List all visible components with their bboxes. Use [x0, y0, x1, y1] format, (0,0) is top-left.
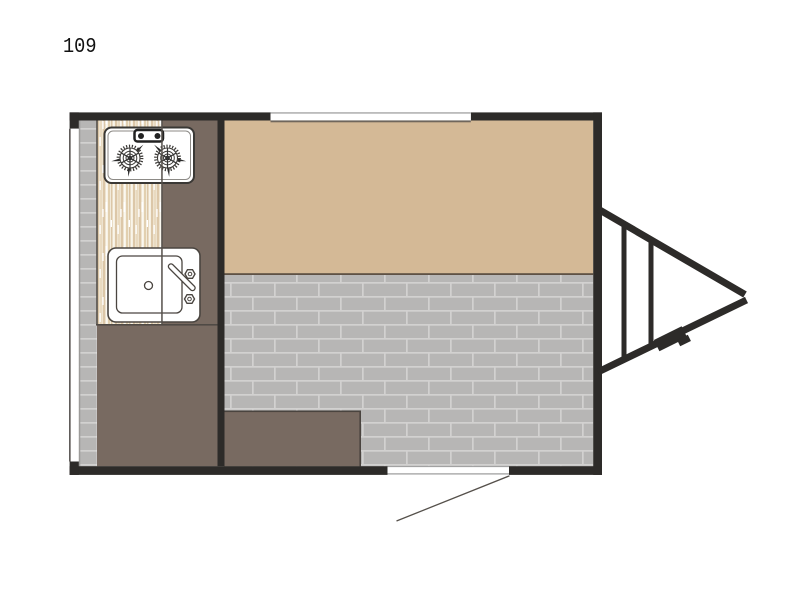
svg-text:109: 109	[63, 36, 97, 59]
